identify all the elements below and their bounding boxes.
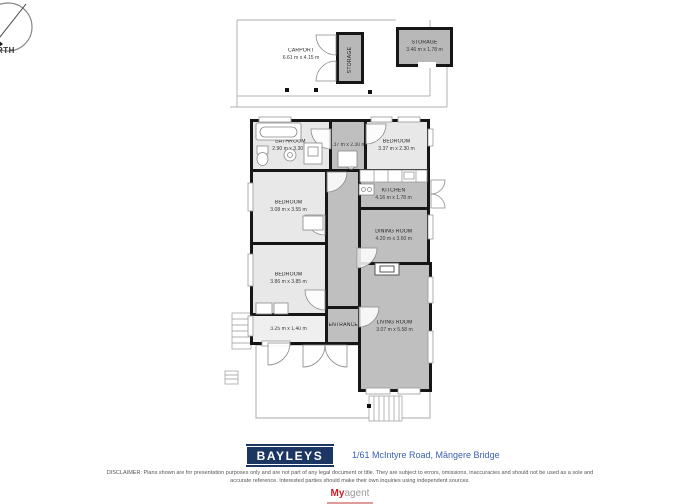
steps-left	[225, 313, 251, 384]
myagent-logo: Myagent	[0, 483, 700, 504]
room-bathroom: BATHROOM 2.90 m x 3.30 m	[250, 119, 332, 172]
room-bedroom-bottom: BEDROOM 3.86 m x 3.85 m	[250, 242, 328, 316]
kitchen-name: KITCHEN	[376, 187, 413, 194]
room-living: LIVING ROOM 3.07 m x 5.58 m	[358, 262, 432, 392]
kitchen-dims: 4.16 m x 1.78 m	[376, 195, 413, 202]
myagent-logo-my: My	[331, 488, 345, 499]
room-hall-top: 2.37 m x 2.30 m	[329, 119, 367, 172]
storage-attached-room: STORAGE	[336, 32, 364, 84]
porch-dims: 3.25 m x 1.40 m	[271, 325, 308, 332]
room-hallway	[325, 169, 361, 309]
dining-dims: 4.20 m x 3.60 m	[375, 236, 412, 243]
room-entrance: ENTRANCE	[325, 306, 361, 345]
bayleys-brand-text: BAYLEYS	[257, 449, 324, 463]
dining-name: DINING ROOM	[375, 229, 412, 236]
carport-name: CARPORT	[263, 47, 340, 54]
hall-top-dims: 2.37 m x 2.30 m	[330, 142, 367, 149]
room-bedroom-mid: BEDROOM 3.08 m x 3.55 m	[250, 169, 328, 245]
floor-plan-page: { "compass": { "north_label": "NORTH" },…	[0, 0, 700, 500]
myagent-logo-agent: agent	[344, 488, 369, 499]
living-name: LIVING ROOM	[377, 320, 414, 327]
bedroom-bottom-name: BEDROOM	[271, 272, 308, 279]
carport-dims: 6.61 m x 4.15 m	[263, 55, 340, 62]
bedroom-mid-name: BEDROOM	[271, 200, 308, 207]
room-dining: DINING ROOM 4.20 m x 3.60 m	[358, 207, 430, 265]
bedroom-bottom-dims: 3.86 m x 3.85 m	[271, 279, 308, 286]
living-dims: 3.07 m x 5.58 m	[377, 327, 414, 334]
room-porch: 3.25 m x 1.40 m	[250, 313, 328, 345]
compass-north-label: NORTH	[0, 46, 44, 55]
disclaimer-line-1: DISCLAIMER: Plans shown are for presenta…	[28, 470, 672, 477]
entrance-name: ENTRANCE	[328, 322, 357, 329]
storage-detached-name: STORAGE	[406, 40, 443, 47]
bedroom-mid-dims: 3.08 m x 3.55 m	[271, 207, 308, 214]
bathroom-dims: 2.90 m x 3.30 m	[273, 146, 310, 153]
steps-bottom	[369, 396, 402, 421]
bedroom-top-name: BEDROOM	[379, 138, 416, 145]
room-kitchen: KITCHEN 4.16 m x 1.78 m	[358, 169, 430, 210]
storage-detached-room: STORAGE 3.46 m x 1.78 m	[396, 27, 453, 67]
bedroom-top-dims: 3.37 m x 2.30 m	[379, 146, 416, 153]
bayleys-logo: BAYLEYS	[246, 444, 334, 467]
carport-label: CARPORT 6.61 m x 4.15 m	[256, 46, 346, 63]
storage-detached-dims: 3.46 m x 1.78 m	[406, 47, 443, 54]
room-bedroom-top: BEDROOM 3.37 m x 2.30 m	[364, 119, 430, 172]
property-address: 1/61 McIntyre Road, Māngere Bridge	[352, 450, 500, 460]
storage-attached-label: STORAGE	[347, 40, 352, 79]
bathroom-name: BATHROOM	[273, 138, 310, 145]
